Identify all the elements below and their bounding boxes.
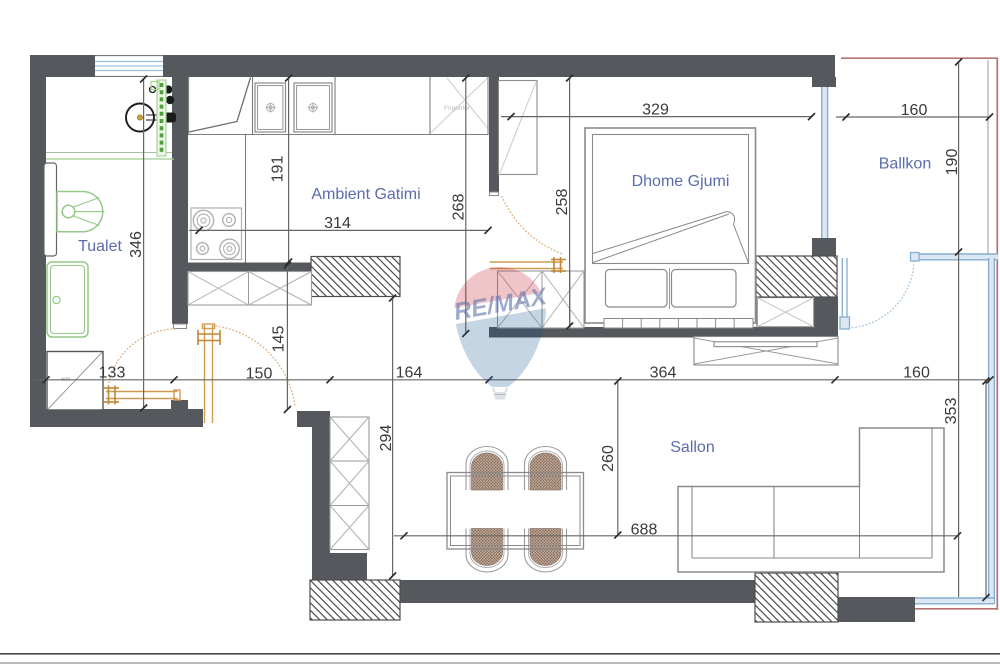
svg-text:329: 329 <box>642 102 669 119</box>
svg-text:260: 260 <box>600 445 617 472</box>
svg-text:145: 145 <box>271 326 288 353</box>
svg-text:190: 190 <box>944 149 961 176</box>
svg-text:133: 133 <box>99 365 126 382</box>
svg-text:258: 258 <box>554 189 571 216</box>
svg-text:346: 346 <box>128 231 145 258</box>
svg-text:Sallon: Sallon <box>670 439 714 456</box>
svg-text:294: 294 <box>378 425 395 452</box>
svg-text:268: 268 <box>451 194 468 221</box>
svg-text:191: 191 <box>270 156 287 183</box>
svg-text:353: 353 <box>943 398 960 425</box>
svg-text:688: 688 <box>631 522 658 539</box>
svg-text:364: 364 <box>650 365 677 382</box>
svg-text:314: 314 <box>324 215 351 232</box>
svg-text:160: 160 <box>901 102 928 119</box>
svg-text:Dhome Gjumi: Dhome Gjumi <box>632 173 730 190</box>
svg-text:Frigorifer: Frigorifer <box>444 105 471 112</box>
svg-text:Tualet: Tualet <box>78 238 122 255</box>
svg-text:160: 160 <box>903 365 930 382</box>
svg-text:Ballkon: Ballkon <box>879 156 931 173</box>
svg-text:Ambient Gatimi: Ambient Gatimi <box>311 186 420 203</box>
svg-text:150: 150 <box>246 366 273 383</box>
svg-text:164: 164 <box>396 365 423 382</box>
